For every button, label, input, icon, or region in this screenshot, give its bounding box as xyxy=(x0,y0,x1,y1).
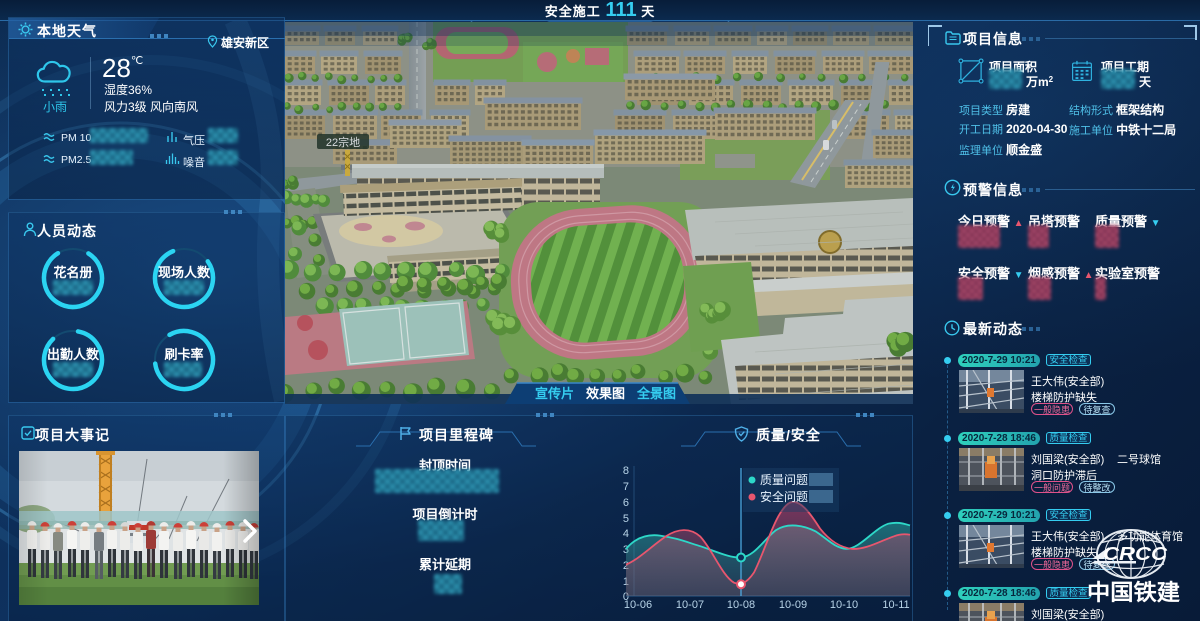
svg-text:10-09: 10-09 xyxy=(779,599,807,611)
svg-text:5: 5 xyxy=(623,513,629,525)
svg-text:中国铁建: 中国铁建 xyxy=(1087,580,1180,605)
svg-text:10-06: 10-06 xyxy=(624,599,652,611)
svg-text:4: 4 xyxy=(623,528,629,540)
svg-text:8: 8 xyxy=(623,465,629,477)
svg-text:质量问题: 质量问题 xyxy=(760,473,808,487)
svg-text:6: 6 xyxy=(623,497,629,509)
svg-text:安全问题: 安全问题 xyxy=(760,489,808,504)
svg-text:全景图: 全景图 xyxy=(636,386,676,401)
svg-text:CRCC: CRCC xyxy=(1103,544,1168,564)
svg-text:7: 7 xyxy=(623,481,629,493)
svg-text:10-07: 10-07 xyxy=(676,599,704,611)
svg-text:效果图: 效果图 xyxy=(586,386,625,401)
svg-text:宣传片: 宣传片 xyxy=(535,386,574,401)
svg-text:10-08: 10-08 xyxy=(727,599,755,611)
svg-text:10-11: 10-11 xyxy=(882,599,909,611)
svg-text:10-10: 10-10 xyxy=(830,599,858,611)
